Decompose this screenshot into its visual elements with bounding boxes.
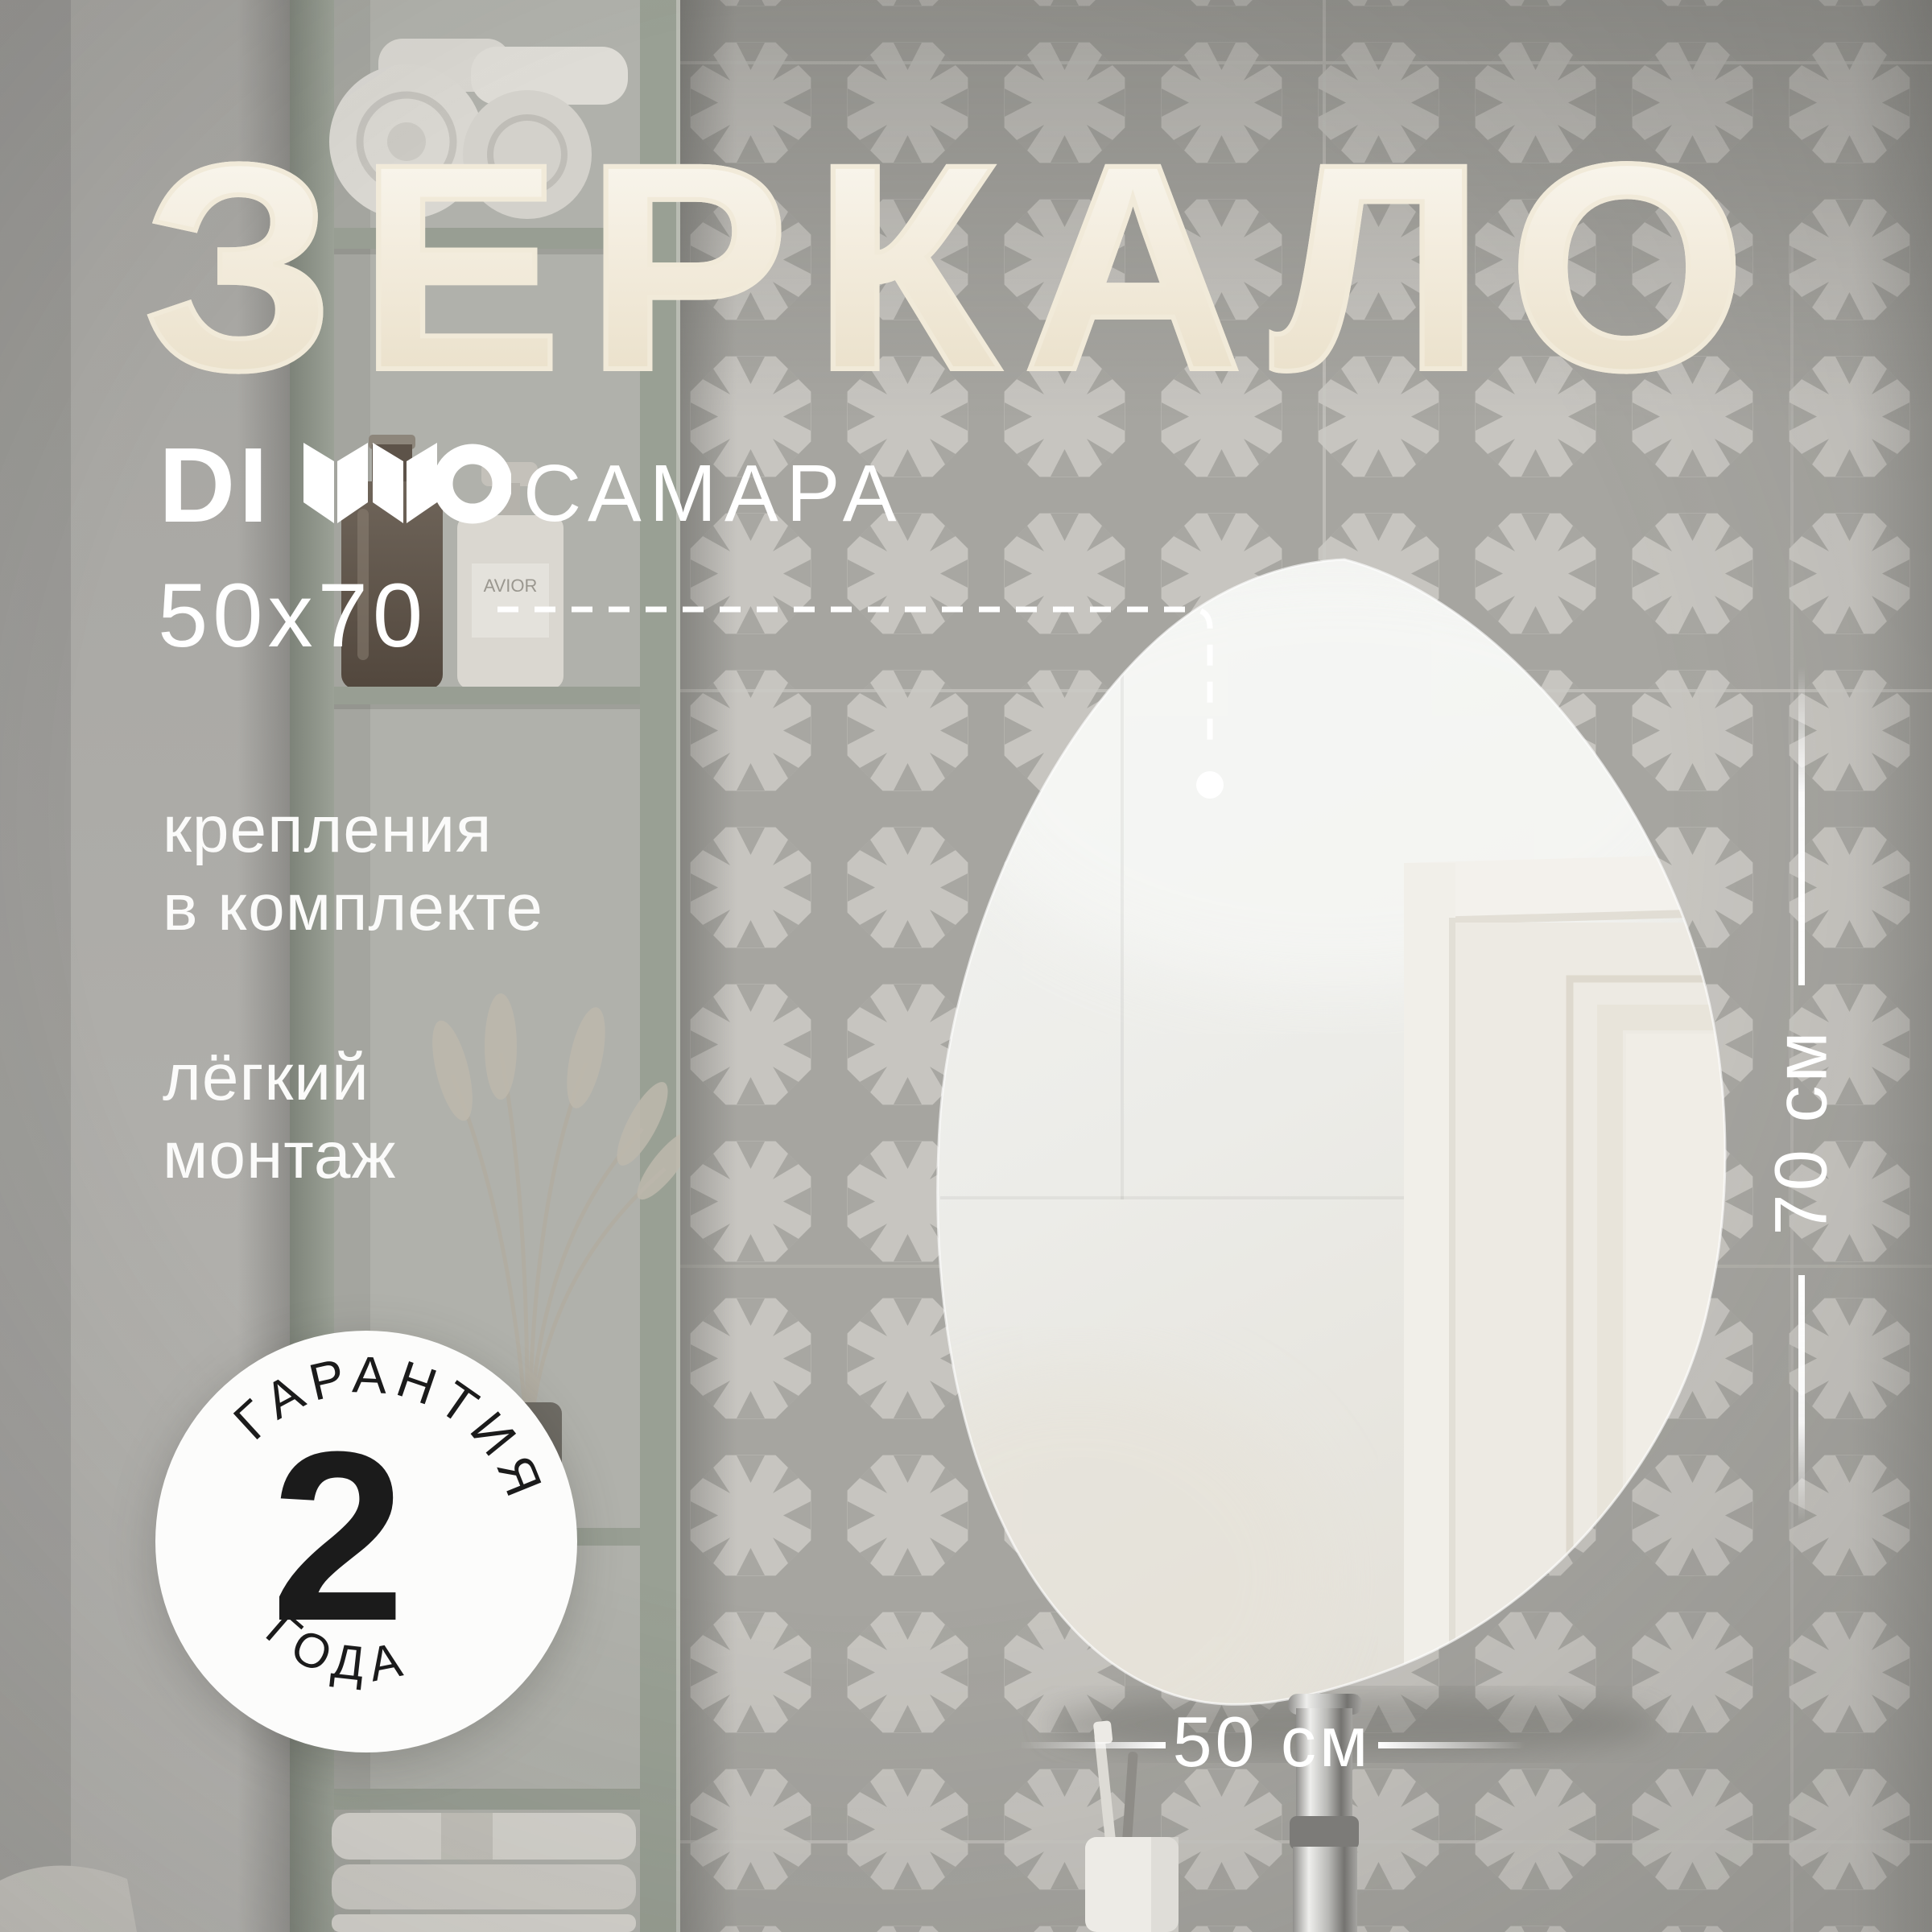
- warranty-badge: ГАРАНТИЯ ГОДА 2: [143, 1314, 594, 1773]
- feature-line: монтаж: [163, 1117, 396, 1195]
- brand-logo: DI: [157, 441, 511, 536]
- product-card: AVIOR: [0, 0, 1932, 1932]
- brand-chevron-icon: [303, 443, 437, 523]
- size-label: 50x70: [158, 563, 427, 667]
- feature-line: в комплекте: [163, 869, 543, 947]
- feature-easy-install: лёгкий монтаж: [163, 1038, 396, 1195]
- brand-logo-o-icon: [443, 454, 502, 514]
- feature-line: лёгкий: [163, 1038, 396, 1117]
- feature-mounts: крепления в комплекте: [163, 791, 543, 947]
- callout-dotted-line: [497, 609, 1210, 755]
- model-name: САМАРА: [523, 448, 904, 540]
- feature-line: крепления: [163, 791, 543, 869]
- page-title: ЗЕРКАЛО: [143, 121, 1769, 415]
- warranty-number: 2: [271, 1401, 406, 1671]
- width-dimension-label: 50 см: [1173, 1701, 1372, 1783]
- callout-dot: [1196, 771, 1224, 799]
- brand-logo-di: DI: [159, 441, 271, 536]
- height-dimension-label: 70 см: [1760, 1028, 1844, 1235]
